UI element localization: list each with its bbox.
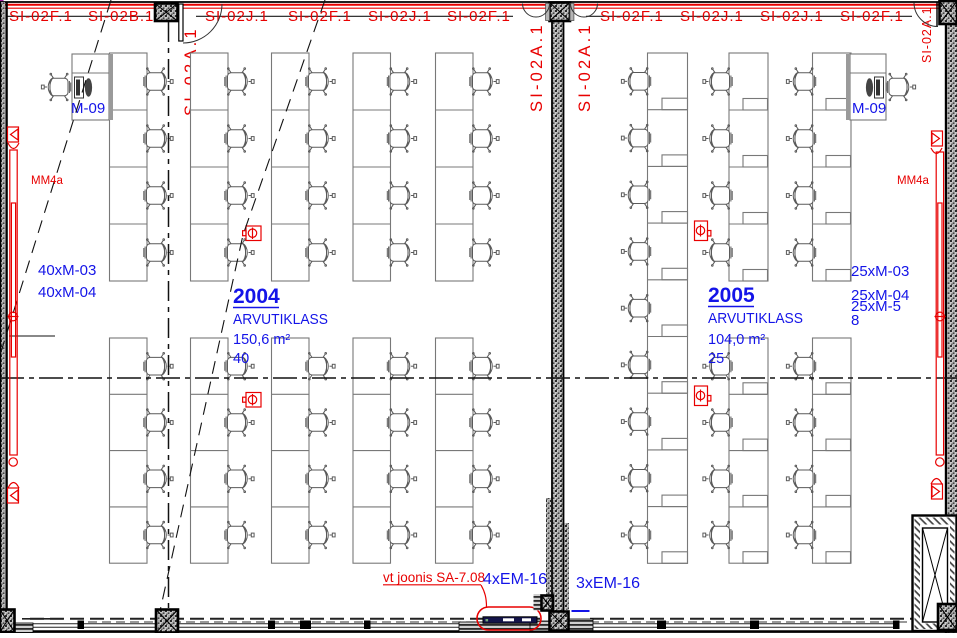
svg-text:SI-02F.1: SI-02F.1 [288,8,352,25]
svg-text:SI-02J.1: SI-02J.1 [680,8,744,25]
svg-text:150,6 m²: 150,6 m² [233,332,290,348]
svg-text:SI-02F.1: SI-02F.1 [840,8,904,25]
svg-text:SI-02A.1: SI-02A.1 [920,6,934,63]
svg-text:40xM-03: 40xM-03 [38,262,96,279]
svg-text:SI-02A.1: SI-02A.1 [528,22,546,112]
svg-text:ARVUTIKLASS: ARVUTIKLASS [708,311,803,327]
svg-text:25: 25 [708,351,724,367]
svg-text:25xM-03: 25xM-03 [851,263,909,280]
svg-text:2005: 2005 [708,284,755,307]
svg-text:4xEM-16: 4xEM-16 [483,571,547,588]
svg-text:MM4a: MM4a [31,175,64,187]
svg-text:SI-02J.1: SI-02J.1 [368,8,432,25]
svg-text:104,0 m²: 104,0 m² [708,332,765,348]
svg-text:SI-02J.1: SI-02J.1 [760,8,824,25]
svg-text:MM4a: MM4a [897,175,930,187]
svg-text:8: 8 [851,312,859,329]
svg-text:SI-02J.1: SI-02J.1 [205,8,269,25]
svg-text:2004: 2004 [233,285,280,308]
svg-text:40xM-04: 40xM-04 [38,284,96,301]
svg-text:SI-02F.1: SI-02F.1 [600,8,664,25]
svg-text:3xEM-16: 3xEM-16 [576,575,640,592]
svg-text:ARVUTIKLASS: ARVUTIKLASS [233,312,328,328]
svg-text:vt joonis SA-7.08: vt joonis SA-7.08 [383,570,485,585]
svg-text:SI-02B.1: SI-02B.1 [88,8,154,25]
svg-text:M-09: M-09 [71,100,105,117]
svg-text:SI-02F.1: SI-02F.1 [9,8,73,25]
svg-text:M-09: M-09 [852,100,886,117]
svg-text:40: 40 [233,351,249,367]
svg-text:SI-02F.1: SI-02F.1 [447,8,511,25]
svg-text:SI-02A.1: SI-02A.1 [576,22,594,112]
